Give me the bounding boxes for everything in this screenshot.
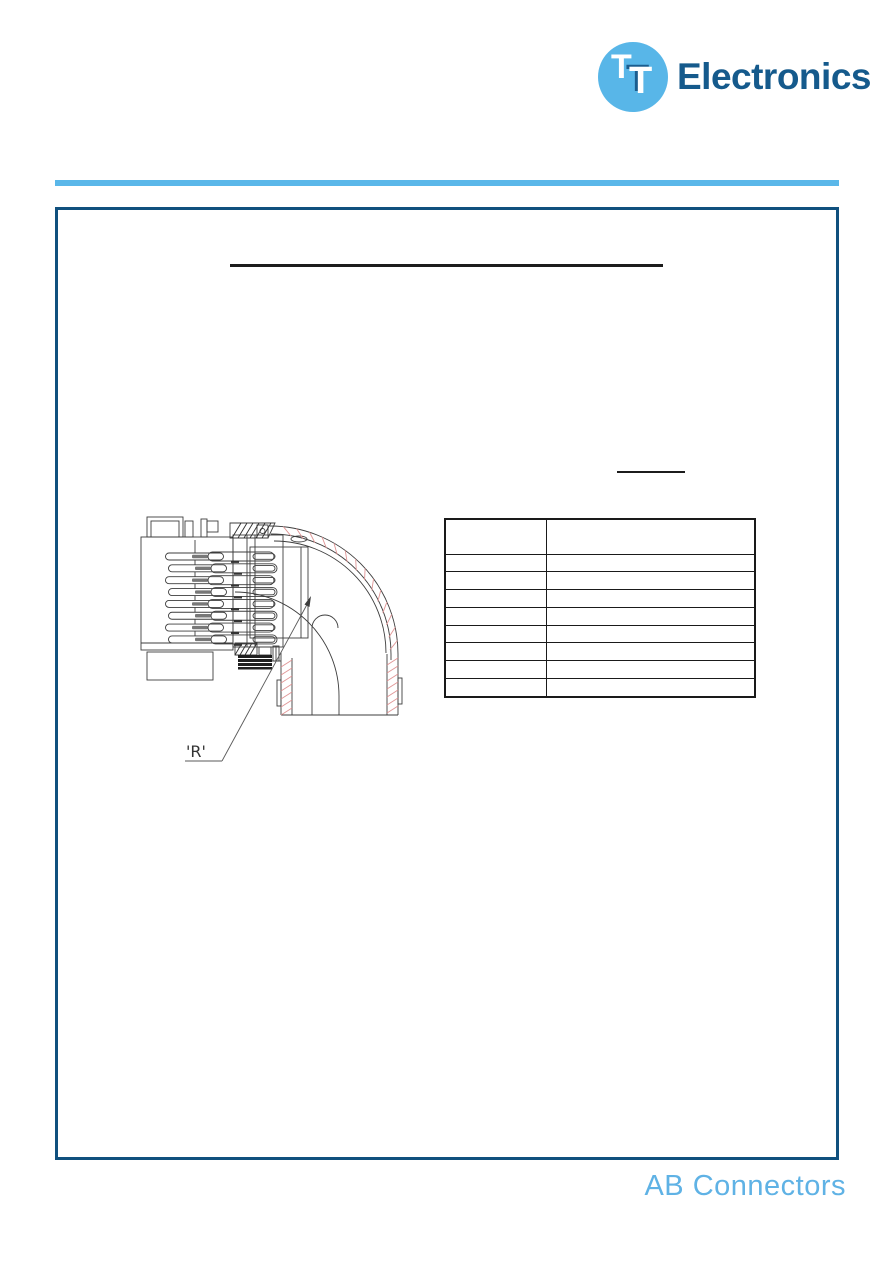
- table-cell: [446, 520, 546, 554]
- header-divider-rule: [55, 180, 839, 186]
- table-cell: [446, 572, 546, 589]
- section-underline-rule: [617, 471, 685, 473]
- table-cell: [446, 608, 546, 625]
- drawing-latch: [147, 517, 183, 537]
- table-cell: [446, 590, 546, 607]
- table-row: [446, 642, 754, 660]
- drawing-backshell-block: [147, 652, 213, 680]
- logo-brand-text: Electronics: [677, 42, 871, 112]
- table-cell: [546, 608, 754, 625]
- table-cell: [546, 643, 754, 660]
- table-cell: [446, 643, 546, 660]
- table-cell: [546, 679, 754, 696]
- table-row: [446, 520, 754, 554]
- table-row: [446, 589, 754, 607]
- table-row: [446, 571, 754, 589]
- datasheet-page: { "header": { "logo": { "mark_text_1": "…: [0, 0, 893, 1263]
- spec-table: [444, 518, 756, 698]
- tt-logo-icon: T T: [598, 42, 668, 112]
- drawing-pin-contacts: [166, 552, 278, 646]
- table-row: [446, 607, 754, 625]
- table-row: [446, 554, 754, 572]
- tt-electronics-logo: T T Electronics: [598, 42, 871, 112]
- connector-cross-section-drawing: 'R': [135, 500, 425, 780]
- table-cell: [546, 555, 754, 572]
- table-cell: [546, 520, 754, 554]
- table-row: [446, 678, 754, 696]
- drawing-elbow-outer-wall: [270, 526, 398, 715]
- title-underline-rule: [230, 264, 663, 267]
- table-cell: [446, 661, 546, 678]
- drawing-radius-label: 'R': [186, 742, 206, 761]
- table-cell: [546, 661, 754, 678]
- table-cell: [546, 590, 754, 607]
- table-cell: [446, 626, 546, 643]
- table-cell: [546, 626, 754, 643]
- drawing-coupling-nut: [238, 655, 272, 670]
- footer-brand-text: AB Connectors: [644, 1170, 846, 1203]
- table-cell: [546, 572, 754, 589]
- table-cell: [446, 555, 546, 572]
- table-row: [446, 625, 754, 643]
- table-row: [446, 660, 754, 678]
- logo-letter-t2: T: [629, 62, 652, 100]
- table-cell: [446, 679, 546, 696]
